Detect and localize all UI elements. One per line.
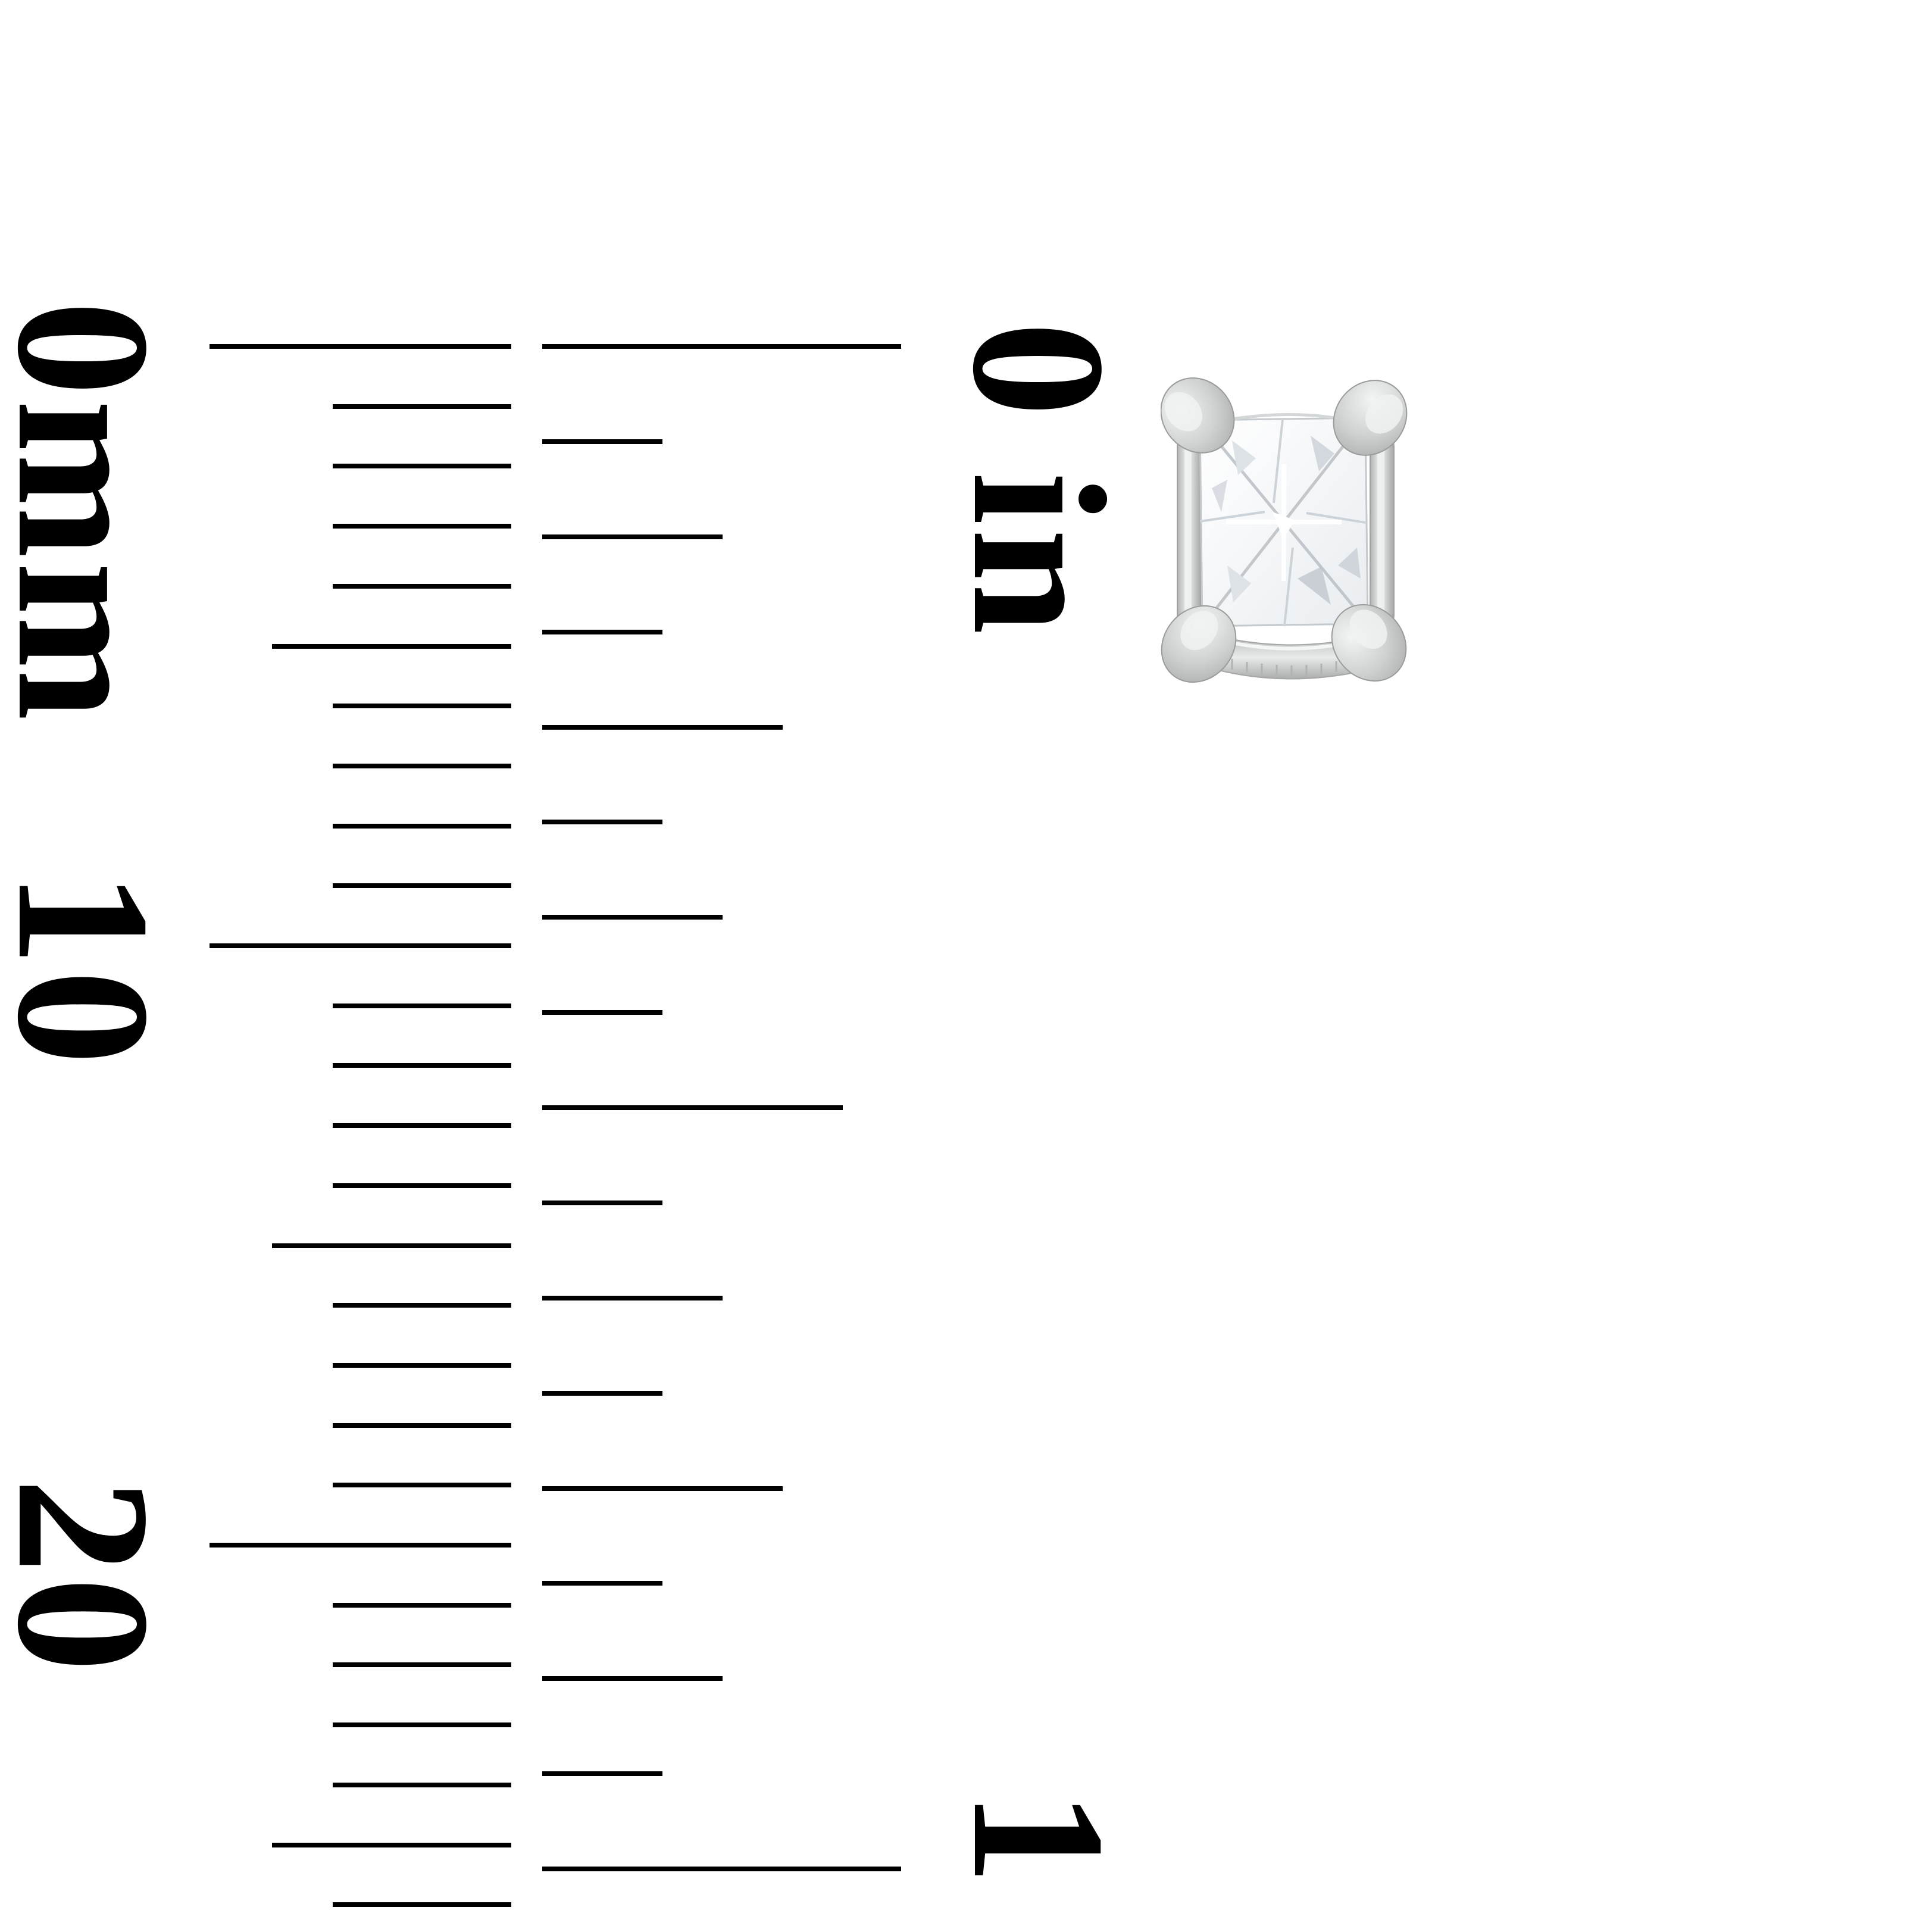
mm-tick-20 — [210, 1543, 511, 1548]
mm-tick-8 — [333, 824, 511, 829]
mm-tick-10 — [210, 943, 511, 948]
mm-tick-17 — [333, 1363, 511, 1368]
mm-tick-23 — [333, 1722, 511, 1727]
mm-scale-label-0mm: 0mm — [0, 301, 179, 724]
mm-tick-12 — [333, 1063, 511, 1068]
mm-tick-14 — [333, 1183, 511, 1188]
inch-tick-14 — [542, 1676, 723, 1681]
mm-tick-2 — [333, 464, 511, 468]
mm-tick-4 — [333, 584, 511, 589]
inch-tick-9 — [542, 1201, 662, 1205]
mm-tick-24 — [333, 1783, 511, 1787]
mm-tick-21 — [333, 1603, 511, 1608]
inch-tick-11 — [542, 1391, 662, 1396]
mm-tick-16 — [333, 1303, 511, 1308]
mm-tick-9 — [333, 883, 511, 888]
mm-tick-13 — [333, 1123, 511, 1128]
mm-tick-6 — [333, 704, 511, 708]
inch-tick-8 — [542, 1105, 843, 1110]
inch-scale-label-1: 1 — [943, 1790, 1134, 1889]
inch-tick-15 — [542, 1771, 662, 1776]
mm-tick-0 — [210, 344, 511, 349]
inch-tick-3 — [542, 630, 662, 634]
mm-tick-26 — [333, 1902, 511, 1907]
mm-tick-19 — [333, 1483, 511, 1487]
inch-scale-label-0in: 0 in — [943, 321, 1134, 638]
earring-photo — [1161, 369, 1417, 702]
mm-tick-5 — [272, 644, 511, 649]
inch-tick-16 — [542, 1867, 901, 1871]
inch-tick-13 — [542, 1581, 662, 1586]
mm-tick-11 — [333, 1003, 511, 1008]
inch-tick-4 — [542, 725, 783, 730]
mm-scale-label-20: 20 — [0, 1478, 179, 1676]
mm-tick-1 — [333, 404, 511, 409]
inch-tick-7 — [542, 1010, 662, 1015]
inch-tick-6 — [542, 915, 723, 920]
inch-tick-1 — [542, 439, 662, 444]
mm-tick-15 — [272, 1243, 511, 1248]
mm-tick-3 — [333, 524, 511, 529]
mm-tick-18 — [333, 1423, 511, 1428]
inch-tick-10 — [542, 1296, 723, 1300]
mm-tick-7 — [333, 764, 511, 768]
inch-tick-12 — [542, 1486, 783, 1491]
inch-tick-5 — [542, 820, 662, 824]
scale-image-canvas: 0mm 10 20 0 in 1 — [0, 0, 1932, 1932]
inch-tick-0 — [542, 344, 901, 349]
mm-tick-22 — [333, 1662, 511, 1667]
inch-tick-2 — [542, 534, 723, 539]
ruler: 0mm 10 20 0 in 1 — [0, 0, 1932, 1932]
mm-scale-label-10: 10 — [0, 871, 179, 1069]
mm-tick-25 — [272, 1843, 511, 1847]
